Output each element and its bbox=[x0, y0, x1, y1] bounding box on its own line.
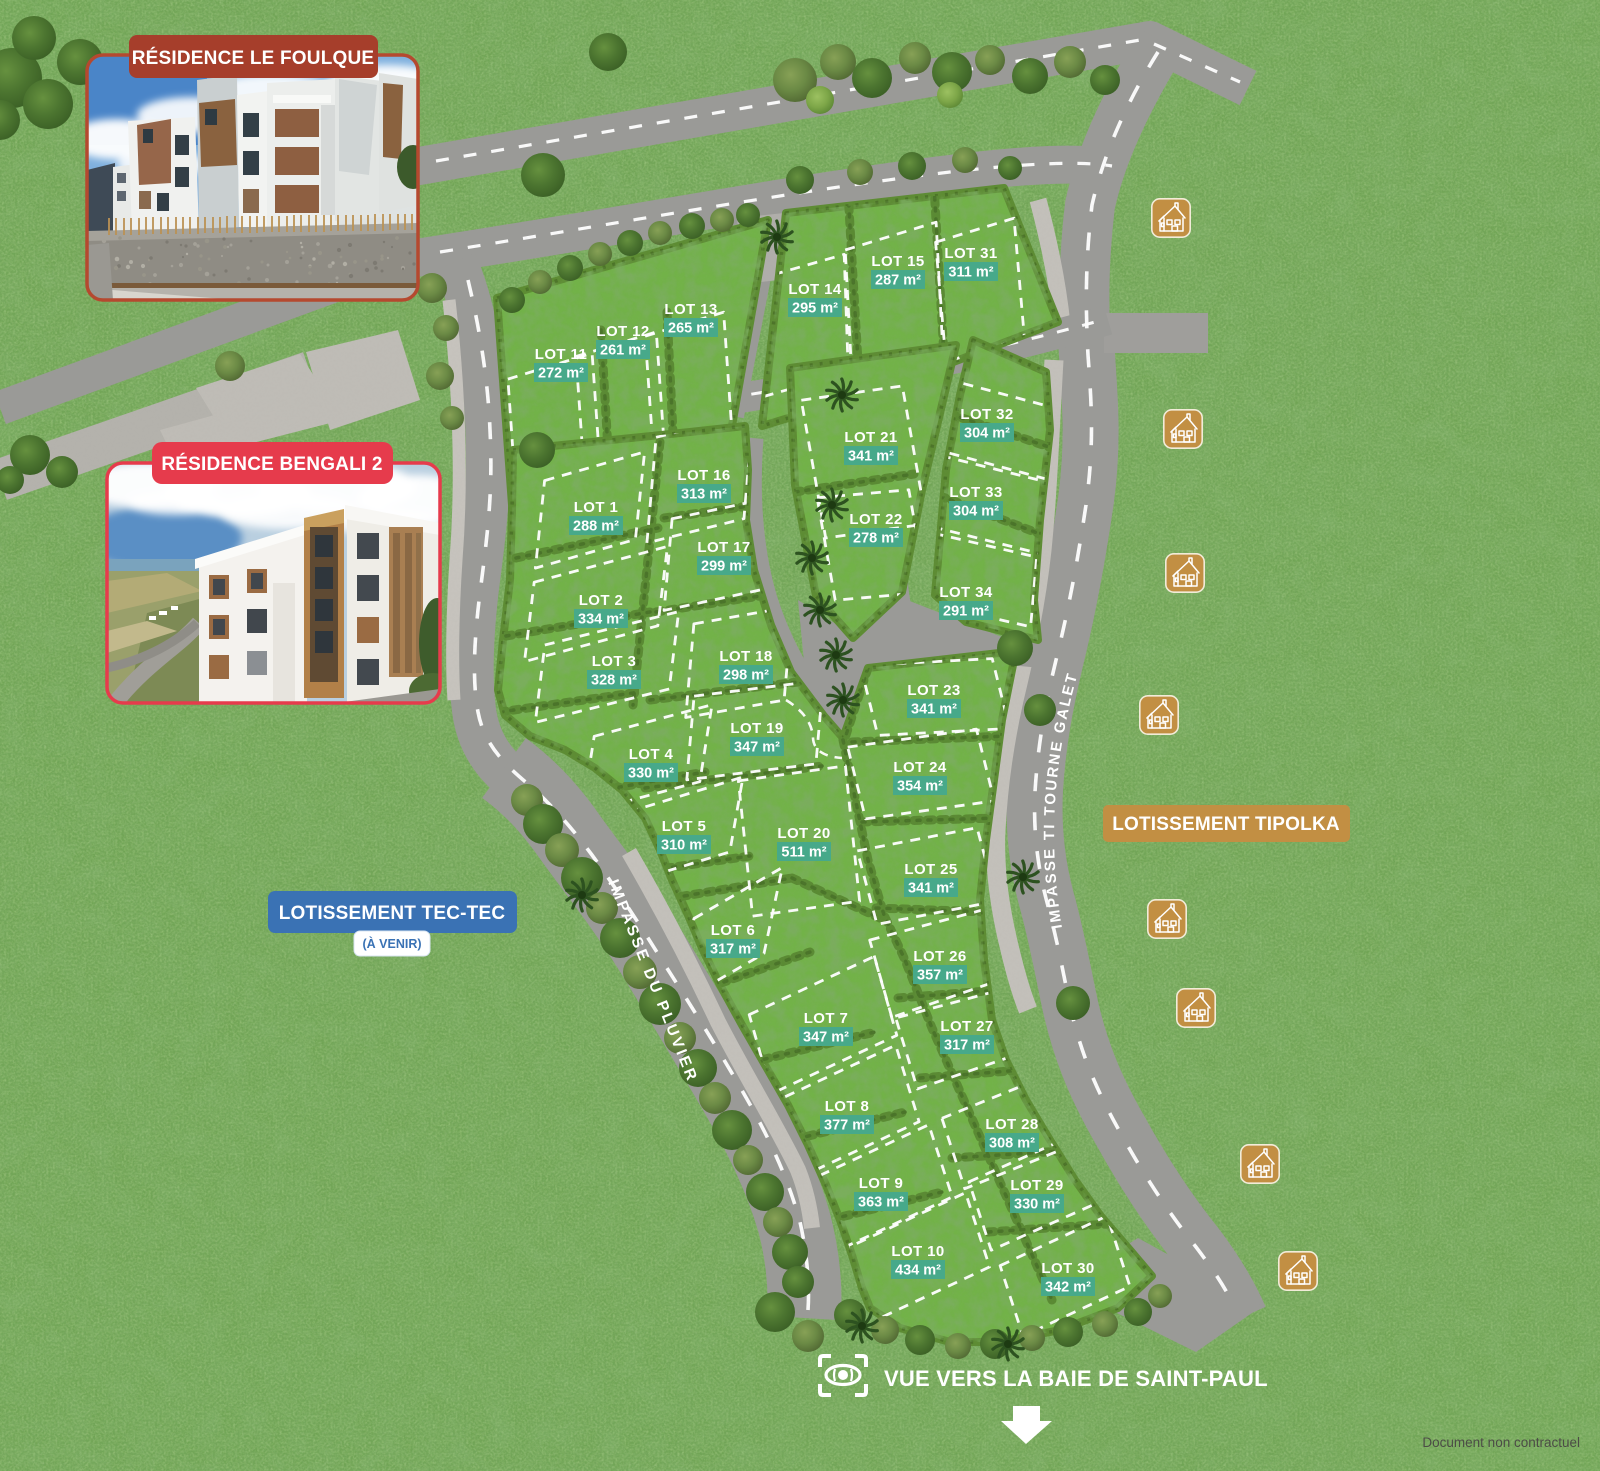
svg-text:LOT 29: LOT 29 bbox=[1010, 1177, 1063, 1194]
svg-text:RÉSIDENCE LE FOULQUE: RÉSIDENCE LE FOULQUE bbox=[132, 47, 375, 69]
svg-text:LOT 32: LOT 32 bbox=[960, 406, 1013, 423]
svg-text:LOT 17: LOT 17 bbox=[697, 539, 750, 556]
svg-text:330 m²: 330 m² bbox=[1014, 1197, 1060, 1213]
svg-text:(À VENIR): (À VENIR) bbox=[362, 936, 421, 951]
svg-text:377 m²: 377 m² bbox=[824, 1118, 870, 1134]
svg-text:304 m²: 304 m² bbox=[953, 504, 999, 520]
svg-text:LOT 13: LOT 13 bbox=[664, 301, 717, 318]
svg-text:LOT 34: LOT 34 bbox=[939, 584, 993, 601]
svg-text:LOT 30: LOT 30 bbox=[1041, 1260, 1094, 1277]
svg-text:330 m²: 330 m² bbox=[628, 766, 674, 782]
svg-text:LOTISSEMENT TIPOLKA: LOTISSEMENT TIPOLKA bbox=[1112, 814, 1340, 835]
svg-text:LOT 9: LOT 9 bbox=[859, 1175, 904, 1192]
svg-text:LOT 12: LOT 12 bbox=[596, 323, 649, 340]
svg-text:LOT 20: LOT 20 bbox=[777, 825, 830, 842]
svg-text:LOT 21: LOT 21 bbox=[844, 429, 897, 446]
svg-text:261 m²: 261 m² bbox=[600, 343, 646, 359]
svg-text:LOT 18: LOT 18 bbox=[719, 648, 772, 665]
svg-text:LOT 23: LOT 23 bbox=[907, 682, 960, 699]
svg-text:LOT 24: LOT 24 bbox=[893, 759, 947, 776]
svg-text:LOT 10: LOT 10 bbox=[891, 1243, 944, 1260]
svg-text:LOT 27: LOT 27 bbox=[940, 1018, 993, 1035]
svg-text:265 m²: 265 m² bbox=[668, 321, 714, 337]
svg-text:LOT 6: LOT 6 bbox=[711, 922, 756, 939]
svg-text:291 m²: 291 m² bbox=[943, 604, 989, 620]
svg-text:295 m²: 295 m² bbox=[792, 301, 838, 317]
svg-text:LOT 28: LOT 28 bbox=[985, 1116, 1038, 1133]
svg-text:311 m²: 311 m² bbox=[948, 265, 993, 281]
svg-text:LOT 26: LOT 26 bbox=[913, 948, 966, 965]
svg-text:317 m²: 317 m² bbox=[944, 1038, 990, 1054]
svg-text:Document non contractuel: Document non contractuel bbox=[1422, 1435, 1580, 1450]
svg-text:LOT 15: LOT 15 bbox=[871, 253, 924, 270]
svg-text:342 m²: 342 m² bbox=[1045, 1280, 1091, 1296]
svg-text:LOT 31: LOT 31 bbox=[944, 245, 997, 262]
svg-text:LOT 25: LOT 25 bbox=[904, 861, 957, 878]
svg-text:299 m²: 299 m² bbox=[701, 559, 747, 575]
svg-text:278 m²: 278 m² bbox=[853, 531, 899, 547]
svg-text:304 m²: 304 m² bbox=[964, 426, 1010, 442]
svg-text:288 m²: 288 m² bbox=[573, 519, 619, 535]
svg-text:310 m²: 310 m² bbox=[661, 838, 707, 854]
svg-text:LOT 8: LOT 8 bbox=[825, 1098, 870, 1115]
svg-text:LOT 3: LOT 3 bbox=[592, 653, 637, 670]
svg-text:LOT 5: LOT 5 bbox=[662, 818, 707, 835]
svg-text:511 m²: 511 m² bbox=[781, 845, 826, 861]
svg-text:VUE VERS LA BAIE DE SAINT-PAUL: VUE VERS LA BAIE DE SAINT-PAUL bbox=[884, 1366, 1268, 1391]
svg-text:434 m²: 434 m² bbox=[895, 1263, 941, 1279]
svg-text:LOT 33: LOT 33 bbox=[949, 484, 1002, 501]
svg-text:308 m²: 308 m² bbox=[989, 1136, 1035, 1152]
svg-text:LOT 2: LOT 2 bbox=[579, 592, 624, 609]
svg-text:298 m²: 298 m² bbox=[723, 668, 769, 684]
svg-text:334 m²: 334 m² bbox=[578, 612, 624, 628]
svg-text:LOT 1: LOT 1 bbox=[574, 499, 619, 516]
svg-text:317 m²: 317 m² bbox=[710, 942, 756, 958]
svg-text:LOT 4: LOT 4 bbox=[629, 746, 674, 763]
svg-text:341 m²: 341 m² bbox=[908, 881, 954, 897]
svg-text:357 m²: 357 m² bbox=[917, 968, 963, 984]
svg-text:341 m²: 341 m² bbox=[848, 449, 894, 465]
svg-text:347 m²: 347 m² bbox=[734, 740, 780, 756]
svg-text:RÉSIDENCE BENGALI 2: RÉSIDENCE BENGALI 2 bbox=[161, 453, 382, 475]
svg-text:LOTISSEMENT TEC-TEC: LOTISSEMENT TEC-TEC bbox=[279, 903, 506, 924]
svg-text:272 m²: 272 m² bbox=[538, 366, 584, 382]
svg-text:313 m²: 313 m² bbox=[681, 487, 727, 503]
svg-text:LOT 22: LOT 22 bbox=[849, 511, 902, 528]
svg-text:287 m²: 287 m² bbox=[875, 273, 921, 289]
svg-text:328 m²: 328 m² bbox=[591, 673, 637, 689]
svg-text:341 m²: 341 m² bbox=[911, 702, 957, 718]
svg-text:LOT 16: LOT 16 bbox=[677, 467, 730, 484]
svg-text:347 m²: 347 m² bbox=[803, 1030, 849, 1046]
svg-text:LOT 7: LOT 7 bbox=[804, 1010, 849, 1027]
svg-text:363 m²: 363 m² bbox=[858, 1195, 904, 1211]
svg-text:LOT 19: LOT 19 bbox=[730, 720, 783, 737]
svg-text:354 m²: 354 m² bbox=[897, 779, 943, 795]
svg-text:LOT 14: LOT 14 bbox=[788, 281, 842, 298]
svg-text:LOT 11: LOT 11 bbox=[535, 346, 587, 363]
